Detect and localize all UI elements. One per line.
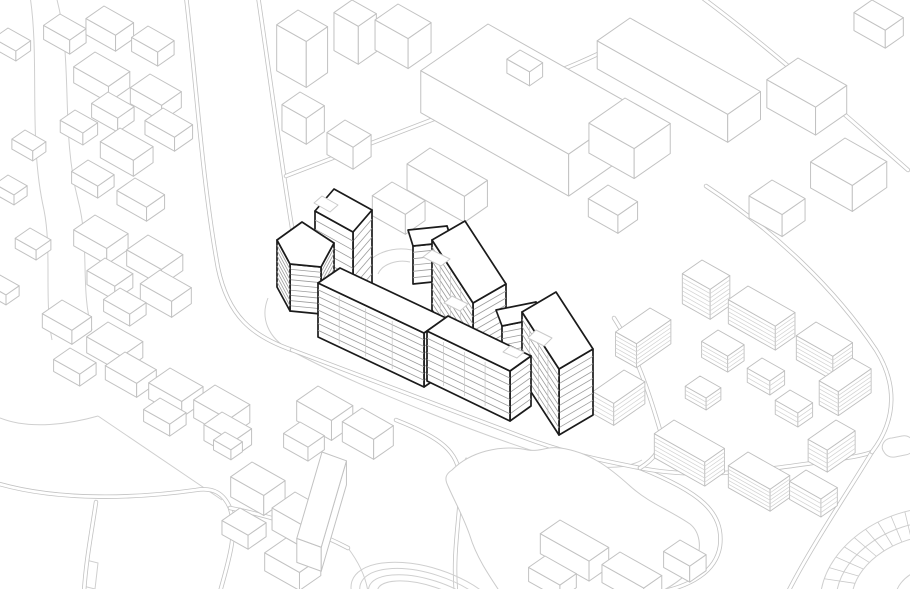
building — [0, 175, 27, 205]
site-axonometric-drawing: Black-and-white axonometric line drawing… — [0, 0, 910, 589]
ground-line — [0, 416, 98, 425]
building — [100, 128, 153, 176]
building — [654, 420, 724, 486]
road — [186, 0, 292, 350]
road-core — [84, 502, 96, 589]
building — [593, 370, 645, 425]
building — [775, 390, 812, 427]
building — [728, 452, 789, 511]
building — [74, 52, 130, 102]
building — [15, 228, 51, 260]
building — [808, 420, 855, 472]
building — [117, 178, 165, 221]
building — [790, 470, 838, 517]
building — [0, 28, 31, 61]
building — [334, 0, 376, 64]
road — [396, 420, 460, 589]
building — [728, 286, 795, 350]
building — [277, 10, 328, 87]
building — [132, 26, 175, 66]
building — [72, 160, 115, 198]
building — [44, 14, 87, 54]
building — [375, 4, 431, 69]
building — [327, 120, 371, 169]
ground-line — [378, 261, 410, 274]
building — [12, 130, 46, 161]
building — [702, 330, 745, 372]
building — [282, 92, 324, 144]
building — [767, 58, 847, 135]
building — [749, 180, 805, 237]
building — [616, 308, 671, 368]
proposed-right-block-east-wing — [522, 292, 593, 435]
building — [685, 376, 721, 410]
road-core — [0, 483, 233, 589]
road-core — [186, 0, 292, 350]
road-core — [396, 420, 460, 589]
building — [86, 6, 134, 51]
building — [297, 452, 347, 571]
building — [588, 185, 637, 233]
building — [42, 300, 91, 344]
road — [0, 483, 233, 589]
building — [0, 275, 19, 305]
building — [854, 0, 903, 48]
road-core — [788, 452, 872, 589]
building — [811, 138, 887, 211]
axonometric-canvas — [0, 0, 910, 589]
building — [74, 215, 128, 264]
ground-line — [882, 436, 910, 457]
building — [682, 260, 730, 319]
building — [747, 358, 784, 395]
ground-line — [30, 0, 52, 340]
se-residential-grid-layer — [593, 260, 871, 517]
